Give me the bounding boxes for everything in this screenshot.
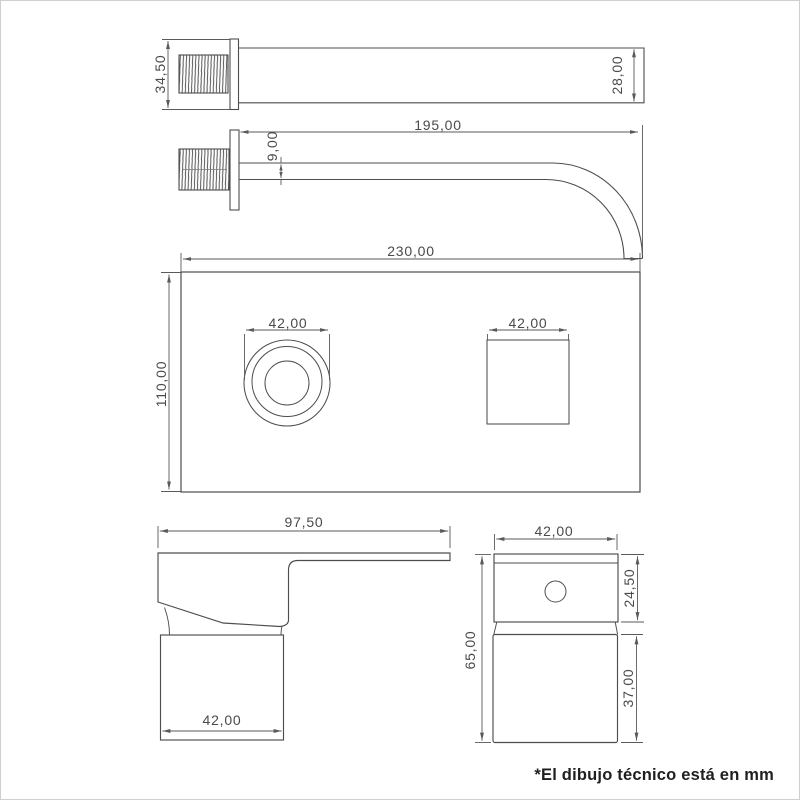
spout-outer-curve — [239, 163, 643, 259]
dim-label-knob-diameter: 42,00 — [268, 316, 307, 330]
handle-base-front — [493, 635, 618, 743]
dim-label-projection-length: 195,00 — [414, 118, 462, 132]
dim-label-cap-height: 24,50 — [622, 568, 636, 607]
wall-plate-front-view — [161, 253, 640, 492]
flange — [230, 39, 239, 110]
handle-cap-front — [494, 554, 618, 622]
flange — [230, 130, 239, 210]
handle-front-view — [475, 534, 644, 743]
thread-hatch — [179, 55, 228, 93]
handle-side-view — [158, 526, 450, 740]
dim-label-plate-height: 110,00 — [154, 361, 168, 408]
wall-plate — [181, 272, 640, 492]
dim-label-base-height: 37,00 — [621, 668, 635, 707]
dim-label-spout-width: 28,00 — [610, 55, 624, 94]
dim-label-plate-width: 230,00 — [387, 244, 435, 258]
dim-label-base-width: 42,00 — [202, 713, 241, 727]
neck-right — [615, 622, 617, 635]
joint-arc-right — [281, 626, 282, 635]
technical-drawing-sheet: 34,50 28,00 195,00 9,00 230,00 110,00 42… — [0, 0, 800, 800]
dim-label-flange-height: 34,50 — [153, 54, 167, 93]
neck-left — [494, 622, 497, 635]
dim-label-body-width: 42,00 — [534, 524, 573, 538]
spout-top-view — [162, 39, 644, 110]
dim-label-spout-thickness: 9,00 — [265, 131, 279, 161]
dim-label-cutout-width: 42,00 — [508, 316, 547, 330]
handle-lever-profile — [158, 553, 450, 627]
joint-arc-left — [165, 608, 170, 636]
spout-body — [239, 48, 645, 103]
dim-label-handle-depth: 97,50 — [284, 515, 323, 529]
dim-label-total-height: 65,00 — [463, 630, 477, 669]
drawing-linework — [1, 1, 800, 800]
spout-side-view — [179, 125, 643, 259]
units-note: *El dibujo técnico está en mm — [534, 766, 774, 785]
